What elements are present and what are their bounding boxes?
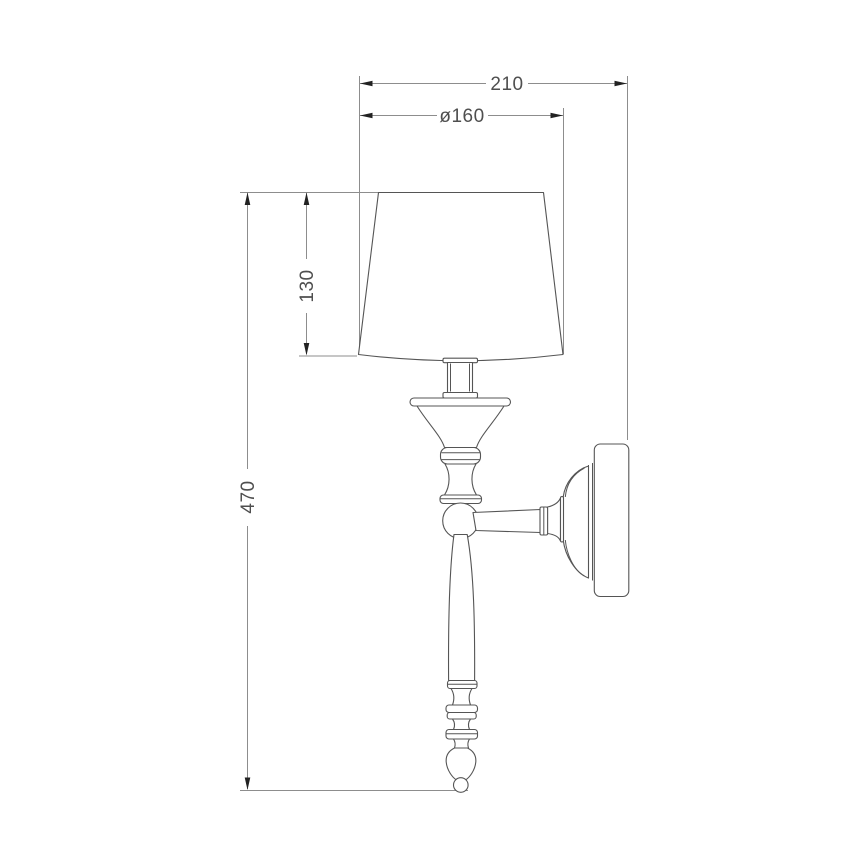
base-neck-lower: [454, 739, 470, 748]
upper-trumpet-flare: [417, 406, 504, 448]
finial-ball: [454, 778, 469, 793]
wall-arm: [473, 510, 541, 533]
arrowhead-top: [304, 193, 310, 206]
arm-trumpet-step-ring: [561, 497, 564, 543]
urn-finial: [446, 748, 476, 780]
candle-sleeve: [448, 363, 473, 393]
dimension-total-projection: 210: [360, 74, 627, 95]
base-ring-lower: [447, 713, 476, 720]
lower-stem: [449, 535, 475, 681]
dimension-label-shade-diameter: ø160: [439, 106, 484, 127]
arrowhead-top: [245, 193, 251, 206]
canopy-bell: [563, 466, 588, 578]
arm-trumpet-flare: [548, 498, 561, 541]
arrowhead-left: [360, 81, 373, 87]
dimension-label-total-projection: 210: [490, 74, 523, 95]
arm-hub-ball: [443, 503, 479, 539]
bead-ring: [441, 448, 481, 465]
dimension-label-overall-height: 470: [238, 480, 259, 513]
dimension-label-shade-height: 130: [297, 269, 318, 302]
candle-sleeve-bottom-flange: [443, 393, 478, 399]
dimension-annotations: 210 ø160 130 470: [238, 74, 628, 791]
arrowhead-bottom: [245, 778, 251, 791]
base-neck-middle: [453, 719, 471, 730]
dimension-shade-height: 130: [297, 193, 318, 356]
arrowhead-left: [360, 113, 373, 119]
sconce-lamp: [359, 193, 564, 793]
arrowhead-bottom: [304, 343, 310, 356]
lamp-shade: [359, 193, 564, 361]
wall-plate: [594, 444, 629, 597]
drip-plate: [410, 398, 511, 406]
wall-mount: [473, 444, 629, 597]
drawing-canvas: 210 ø160 130 470: [0, 0, 868, 868]
dimension-overall-height: 470: [238, 193, 259, 791]
sconce-dimension-drawing: 210 ø160 130 470: [0, 0, 868, 868]
arrowhead-right: [551, 113, 564, 119]
ball-top-flange: [440, 495, 482, 504]
dimension-shade-diameter: ø160: [360, 106, 563, 127]
base-neck-upper: [451, 689, 472, 706]
base-ring-upper: [446, 705, 478, 713]
arrowhead-right: [615, 81, 628, 87]
stem-neck: [445, 464, 477, 495]
